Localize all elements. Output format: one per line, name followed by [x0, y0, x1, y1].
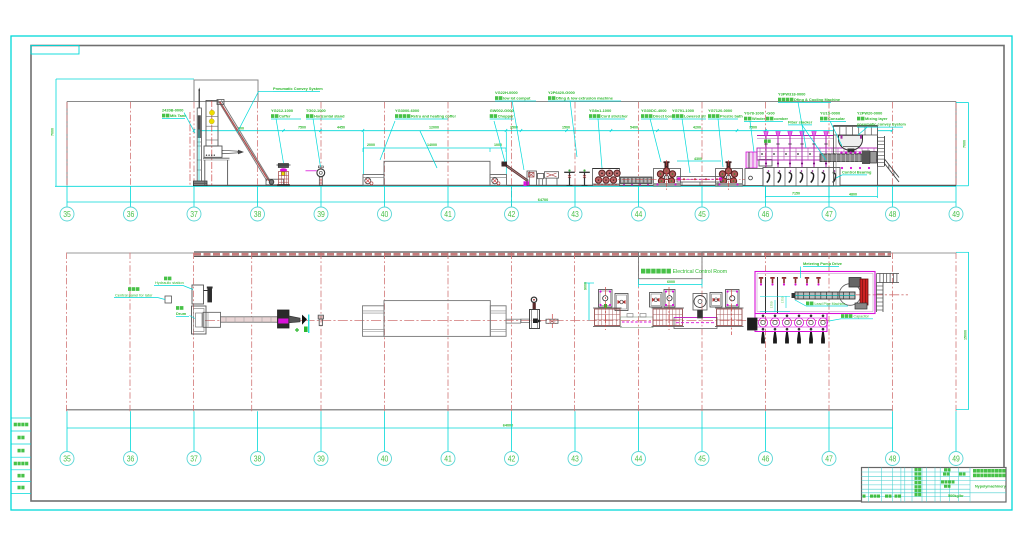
svg-text:35: 35 [63, 209, 71, 219]
svg-text:Mixing layer: Mixing layer [865, 116, 888, 121]
svg-text:15000: 15000 [964, 330, 968, 340]
svg-text:TG02-1000: TG02-1000 [306, 108, 326, 113]
svg-text:2000: 2000 [367, 143, 375, 147]
svg-text:49: 49 [952, 209, 960, 219]
svg-text:Consular: Consular [828, 116, 845, 121]
svg-text:YG3000-6000: YG3000-6000 [395, 108, 419, 113]
svg-text:49: 49 [952, 454, 960, 464]
svg-text:47: 47 [825, 209, 833, 219]
svg-text:low lot comput: low lot comput [503, 96, 531, 101]
svg-text:40: 40 [381, 454, 389, 464]
svg-text:64700: 64700 [538, 198, 549, 202]
svg-text:Cord stretcher: Cord stretcher [601, 114, 628, 119]
svg-text:35: 35 [63, 454, 71, 464]
svg-text:36: 36 [127, 454, 135, 464]
svg-text:36: 36 [127, 209, 135, 219]
svg-text:4300: 4300 [694, 157, 702, 161]
svg-text:YG78-1000: YG78-1000 [744, 111, 764, 116]
svg-text:4450: 4450 [337, 126, 345, 130]
svg-text:7000: 7000 [963, 140, 967, 148]
svg-text:38: 38 [254, 209, 262, 219]
svg-text:39: 39 [317, 209, 325, 219]
svg-text:39: 39 [317, 454, 325, 464]
svg-text:Horizontal stand: Horizontal stand [314, 114, 345, 119]
svg-text:Dfing & Cooling Machine: Dfing & Cooling Machine [794, 97, 841, 102]
svg-text:YG212-1000: YG212-1000 [271, 108, 293, 113]
svg-text:4200: 4200 [693, 126, 701, 130]
svg-text:pneumatic convey System: pneumatic convey System [857, 122, 906, 127]
svg-text:VG22H-0000: VG22H-0000 [495, 90, 518, 95]
svg-text:45: 45 [698, 454, 706, 464]
svg-text:500kg/hr: 500kg/hr [948, 494, 964, 498]
svg-text:Dfing & low extrusion machine: Dfing & low extrusion machine [556, 96, 614, 101]
svg-text:GW002-G000: GW002-G000 [490, 108, 514, 113]
svg-text:45: 45 [698, 209, 706, 219]
svg-text:Y2PW20-0000: Y2PW20-0000 [857, 111, 882, 116]
svg-text:comber: comber [774, 116, 789, 121]
svg-text:Direct box: Direct box [653, 114, 673, 119]
svg-text:YG791-1000: YG791-1000 [672, 108, 694, 113]
svg-text:Hydraulic station: Hydraulic station [155, 280, 184, 285]
svg-text:41: 41 [444, 209, 452, 219]
svg-text:38: 38 [254, 454, 262, 464]
svg-text:7500: 7500 [298, 126, 306, 130]
svg-text:7150: 7150 [792, 192, 800, 196]
svg-text:Fiber stacker: Fiber stacker [788, 120, 813, 125]
svg-text:Winder: Winder [752, 116, 766, 121]
svg-text:YG8n1-1000: YG8n1-1000 [589, 108, 611, 113]
svg-text:Lead Pipe Machine: Lead Pipe Machine [815, 302, 846, 306]
svg-text:40: 40 [381, 209, 389, 219]
svg-text:43: 43 [571, 454, 579, 464]
svg-text:Retru and heating coffer: Retru and heating coffer [411, 114, 456, 119]
svg-text:5400: 5400 [630, 126, 638, 130]
svg-text:7000: 7000 [51, 128, 55, 136]
svg-text:41: 41 [444, 454, 452, 464]
svg-text:1750: 1750 [781, 296, 785, 303]
svg-text:44: 44 [635, 454, 643, 464]
svg-text:Pneumatic Convey System: Pneumatic Convey System [273, 86, 323, 91]
svg-text:YG7120-0000: YG7120-0000 [708, 108, 732, 113]
svg-text:48: 48 [889, 209, 897, 219]
svg-text:YU1S-0000: YU1S-0000 [820, 111, 840, 116]
svg-text:9000: 9000 [584, 282, 588, 290]
svg-text:Metering Pump Drive: Metering Pump Drive [803, 261, 843, 266]
svg-text:12000: 12000 [429, 126, 439, 130]
svg-text:1500: 1500 [562, 126, 570, 130]
svg-text:44: 44 [635, 209, 643, 219]
svg-text:42: 42 [508, 454, 516, 464]
svg-text:Lowered str: Lowered str [684, 114, 707, 119]
svg-text:42: 42 [508, 209, 516, 219]
svg-text:4800: 4800 [849, 193, 857, 197]
svg-text:Nypolymachinery: Nypolymachinery [975, 485, 1007, 489]
svg-text:43: 43 [571, 209, 579, 219]
svg-text:YG30DC-4000: YG30DC-4000 [641, 108, 667, 113]
svg-text:6000: 6000 [667, 280, 675, 284]
svg-text:46: 46 [762, 209, 770, 219]
svg-text:Electrical Control Room: Electrical Control Room [673, 269, 728, 275]
svg-text:46: 46 [762, 454, 770, 464]
svg-text:37: 37 [190, 209, 198, 219]
svg-text:Capacitor: Capacitor [854, 315, 870, 319]
svg-text:37: 37 [190, 454, 198, 464]
svg-text:2420B-0000: 2420B-0000 [162, 108, 183, 113]
svg-text:Prestre bath: Prestre bath [720, 114, 743, 119]
svg-text:48: 48 [889, 454, 897, 464]
svg-text:1750: 1750 [770, 301, 774, 308]
svg-text:Chopper: Chopper [498, 114, 514, 119]
svg-text:7500: 7500 [749, 126, 757, 130]
svg-text:Coffer: Coffer [279, 114, 291, 119]
svg-text:Central panel for lator: Central panel for lator [115, 292, 153, 297]
svg-text:Y3PW318-0000: Y3PW318-0000 [778, 92, 805, 97]
svg-text:47: 47 [825, 454, 833, 464]
svg-text:Drum: Drum [176, 311, 187, 316]
svg-text:Control Bearing: Control Bearing [842, 170, 872, 175]
svg-text:-G00: -G00 [766, 111, 775, 116]
svg-text:14000: 14000 [427, 143, 437, 147]
svg-text:Y2P6420-G000: Y2P6420-G000 [548, 90, 575, 95]
